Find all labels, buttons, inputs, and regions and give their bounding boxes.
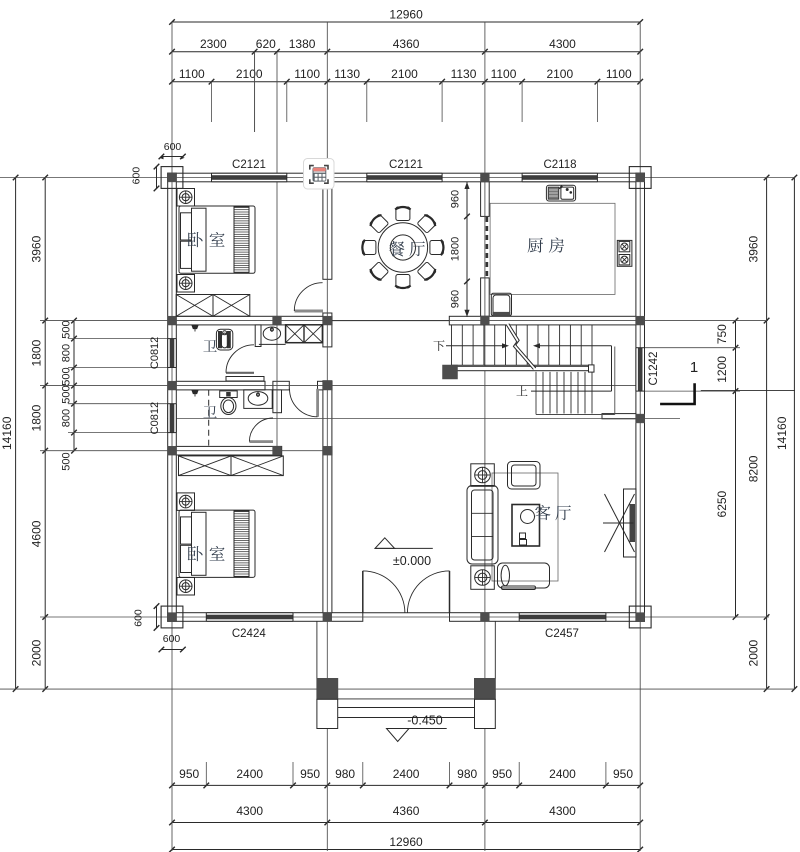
svg-text:4300: 4300 xyxy=(236,804,263,818)
svg-text:750: 750 xyxy=(715,324,729,344)
svg-text:2000: 2000 xyxy=(30,639,44,666)
svg-text:2100: 2100 xyxy=(546,67,573,81)
svg-text:600: 600 xyxy=(131,167,143,185)
svg-text:C2121: C2121 xyxy=(389,159,423,171)
svg-text:600: 600 xyxy=(133,609,145,627)
svg-text:C2457: C2457 xyxy=(545,628,579,640)
svg-text:960: 960 xyxy=(450,190,462,208)
svg-text:1130: 1130 xyxy=(334,67,360,81)
svg-text:-0.450: -0.450 xyxy=(407,714,442,728)
svg-text:2300: 2300 xyxy=(200,37,227,51)
svg-text:2400: 2400 xyxy=(549,767,576,781)
svg-text:1200: 1200 xyxy=(715,356,729,383)
svg-text:4300: 4300 xyxy=(549,37,576,51)
svg-text:1100: 1100 xyxy=(606,67,632,81)
svg-text:C2118: C2118 xyxy=(543,159,576,171)
svg-text:C0812: C0812 xyxy=(149,402,161,434)
svg-text:C2424: C2424 xyxy=(232,628,266,640)
svg-text:2100: 2100 xyxy=(391,67,418,81)
svg-text:500: 500 xyxy=(60,385,72,403)
svg-text:1100: 1100 xyxy=(294,67,320,81)
svg-text:C0812: C0812 xyxy=(149,337,161,369)
svg-text:600: 600 xyxy=(163,633,181,645)
svg-text:960: 960 xyxy=(450,290,462,308)
svg-text:2000: 2000 xyxy=(747,639,761,666)
svg-text:2100: 2100 xyxy=(236,67,263,81)
svg-text:1100: 1100 xyxy=(491,67,517,81)
svg-text:C1242: C1242 xyxy=(648,352,660,386)
svg-text:980: 980 xyxy=(335,767,355,781)
svg-text:6250: 6250 xyxy=(715,490,729,517)
svg-text:14160: 14160 xyxy=(0,416,14,450)
svg-text:1100: 1100 xyxy=(179,67,205,81)
svg-text:1380: 1380 xyxy=(289,37,316,51)
svg-text:950: 950 xyxy=(613,767,633,781)
svg-text:±0.000: ±0.000 xyxy=(393,554,431,568)
svg-text:4300: 4300 xyxy=(549,804,576,818)
svg-text:C2121: C2121 xyxy=(232,159,266,171)
svg-text:12960: 12960 xyxy=(389,8,423,22)
svg-text:600: 600 xyxy=(164,141,182,153)
svg-text:2400: 2400 xyxy=(236,767,263,781)
svg-text:980: 980 xyxy=(457,767,477,781)
svg-text:14160: 14160 xyxy=(775,416,789,450)
svg-text:3960: 3960 xyxy=(747,235,761,262)
svg-text:1130: 1130 xyxy=(451,67,477,81)
svg-text:2400: 2400 xyxy=(393,767,420,781)
svg-text:12960: 12960 xyxy=(389,835,423,849)
svg-text:950: 950 xyxy=(492,767,512,781)
svg-text:800: 800 xyxy=(60,409,72,427)
svg-text:3960: 3960 xyxy=(30,235,44,262)
svg-text:8200: 8200 xyxy=(747,455,761,482)
svg-text:500: 500 xyxy=(60,320,72,338)
svg-text:950: 950 xyxy=(300,767,320,781)
svg-text:950: 950 xyxy=(179,767,199,781)
svg-text:1800: 1800 xyxy=(30,404,44,431)
svg-text:4600: 4600 xyxy=(30,520,44,547)
svg-text:500: 500 xyxy=(60,452,72,470)
svg-text:1: 1 xyxy=(690,359,698,376)
svg-text:4360: 4360 xyxy=(393,804,420,818)
svg-text:1800: 1800 xyxy=(30,339,44,366)
svg-text:500: 500 xyxy=(60,367,72,385)
svg-text:1800: 1800 xyxy=(450,237,462,261)
svg-text:620: 620 xyxy=(256,37,276,51)
svg-text:800: 800 xyxy=(60,344,72,362)
svg-text:4360: 4360 xyxy=(393,37,420,51)
